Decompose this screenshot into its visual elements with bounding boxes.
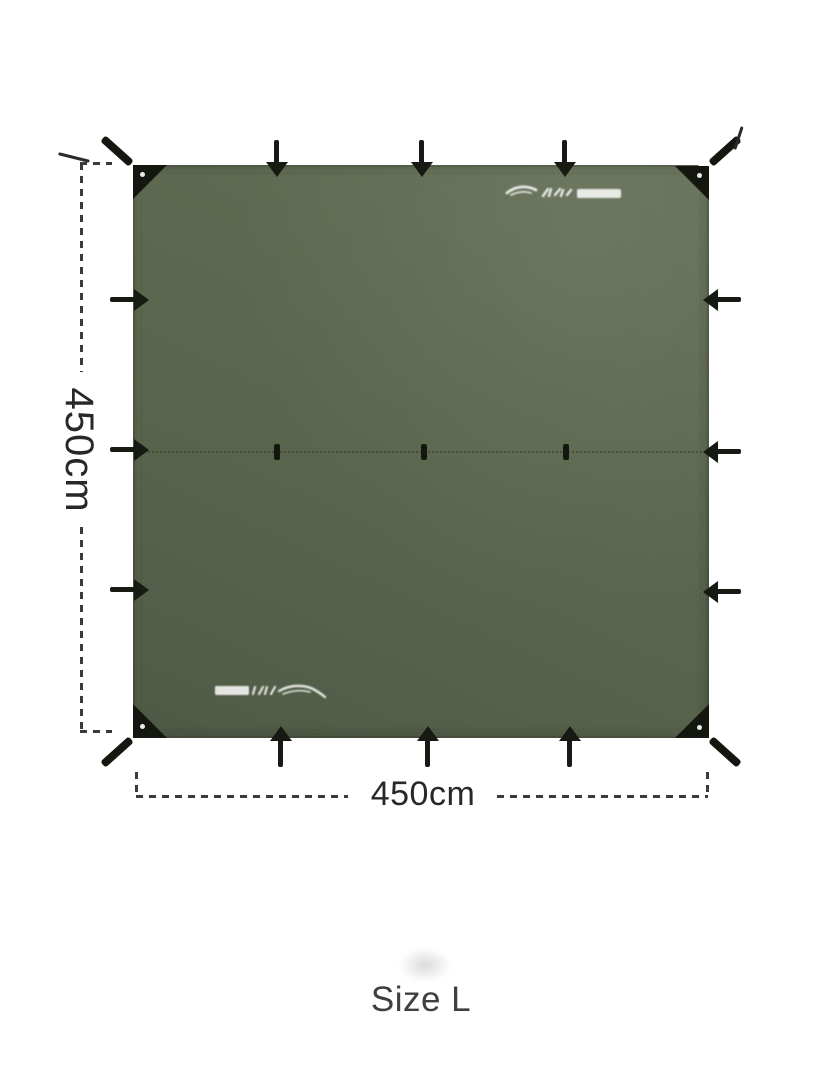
dimension-tick — [80, 730, 112, 733]
corner-loop-icon — [708, 736, 742, 767]
tie-out-arrow-icon — [703, 441, 741, 463]
height-dimension-line — [80, 163, 83, 372]
grommet-icon — [140, 172, 145, 177]
height-dimension-line — [80, 527, 83, 733]
tie-stem — [110, 587, 136, 592]
tie-head — [134, 439, 149, 461]
tie-out-arrow-icon — [559, 726, 581, 768]
tie-out-arrow-icon — [110, 579, 150, 601]
width-dimension-label: 450cm — [346, 774, 500, 814]
dimension-tick — [80, 162, 112, 165]
tie-stem — [716, 449, 741, 454]
height-dimension-label: 450cm — [57, 367, 101, 533]
seam-loop-icon — [274, 444, 280, 460]
tie-out-arrow-icon — [703, 289, 741, 311]
grommet-icon — [697, 173, 702, 178]
seam-loop-icon — [563, 444, 569, 460]
tie-out-arrow-icon — [417, 726, 439, 768]
corner-guyline — [58, 152, 90, 162]
corner-loop-icon — [100, 736, 134, 767]
tie-stem — [716, 297, 741, 302]
product-diagram: 450cm 450cm Size L — [0, 0, 822, 1080]
tie-out-arrow-icon — [110, 289, 150, 311]
tie-stem — [110, 297, 136, 302]
tie-head — [134, 289, 149, 311]
tie-head — [554, 162, 576, 177]
brand-logo-icon — [213, 678, 335, 704]
width-dimension-line — [497, 795, 708, 798]
tie-stem — [110, 447, 136, 452]
tie-out-arrow-icon — [411, 140, 433, 180]
tie-head — [134, 579, 149, 601]
tie-out-arrow-icon — [110, 439, 150, 461]
tie-stem — [278, 739, 283, 767]
seam-loop-icon — [421, 444, 427, 460]
tie-out-arrow-icon — [554, 140, 576, 180]
tie-stem — [562, 140, 567, 164]
tie-stem — [274, 140, 279, 164]
tie-stem — [567, 739, 572, 767]
tie-out-arrow-icon — [270, 726, 292, 768]
tie-out-arrow-icon — [266, 140, 288, 180]
tie-head — [411, 162, 433, 177]
tie-stem — [425, 739, 430, 767]
grommet-icon — [140, 724, 145, 729]
grommet-icon — [697, 725, 702, 730]
size-label: Size L — [0, 980, 822, 1020]
dimension-tick — [135, 772, 138, 797]
width-dimension-line — [136, 795, 348, 798]
dimension-tick — [706, 772, 709, 797]
tie-head — [266, 162, 288, 177]
tie-stem — [419, 140, 424, 164]
tie-out-arrow-icon — [703, 581, 741, 603]
tie-stem — [716, 589, 741, 594]
brand-logo-icon — [505, 182, 627, 208]
